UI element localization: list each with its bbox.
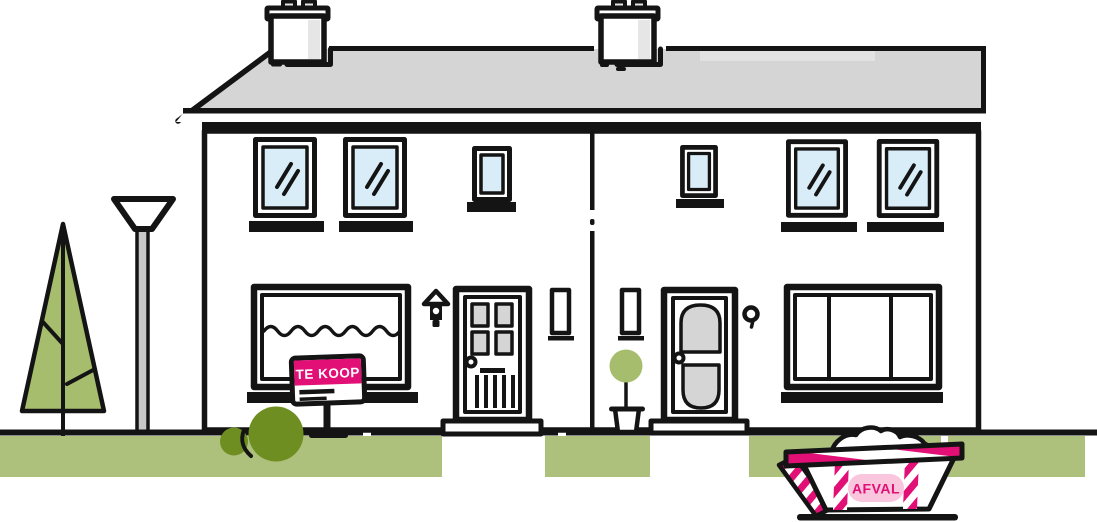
door-knob [467, 358, 476, 367]
window-sill [618, 336, 644, 341]
right-front-door [651, 290, 747, 433]
sign-label: TE KOOP [295, 365, 360, 382]
door-panel [683, 365, 719, 408]
window-sill [781, 392, 943, 403]
right-house-small-window [682, 147, 715, 195]
street-lamp [114, 199, 173, 433]
window-sill [339, 221, 413, 232]
window-sill [548, 336, 574, 341]
skip-ground-shadow [797, 514, 958, 521]
left-front-door [443, 289, 541, 434]
sign-post [324, 403, 331, 434]
letterbox [480, 368, 505, 373]
lamp-pole [137, 228, 148, 433]
chimney-right [597, 2, 661, 72]
left-house-upstairs-window-1 [256, 140, 315, 216]
window-sill [867, 222, 944, 232]
plant-pot [615, 409, 639, 432]
ground-line [0, 430, 1097, 436]
window-sill [249, 221, 324, 232]
door-knob [675, 354, 684, 363]
door-pane [496, 332, 512, 354]
lamp-head [114, 199, 173, 229]
door-pane [472, 332, 488, 354]
left-house-upstairs-window-2 [346, 140, 405, 216]
door-pane [472, 304, 488, 326]
street-scene-illustration: TE KOOP AFVAL [0, 0, 1097, 522]
skip-hazard-band [903, 459, 919, 509]
door-pane [496, 304, 512, 326]
chimney-left [267, 2, 331, 67]
window-sill [781, 222, 857, 232]
right-house-living-window [781, 287, 943, 403]
skip-hazard-band [833, 461, 849, 510]
door-panel [681, 305, 720, 352]
window-mullion [889, 295, 893, 379]
scene-canvas: TE KOOP AFVAL [0, 0, 1097, 522]
window-mullion [827, 295, 831, 379]
window-sill [467, 202, 516, 212]
roof-highlight [700, 51, 875, 61]
plant-ball [610, 350, 643, 383]
right-house-upstairs-window-2 [879, 141, 937, 215]
roof-bottom-edge [183, 108, 986, 114]
right-house-upstairs-window-1 [788, 142, 845, 216]
party-wall-line [590, 133, 595, 431]
conifer-tree [22, 224, 104, 436]
skip-label: AFVAL [852, 481, 900, 497]
left-house-small-window [475, 149, 510, 200]
right-house-hall-window [618, 290, 644, 341]
sign-foot [309, 433, 348, 439]
left-house-hall-window [548, 290, 574, 341]
window-sill [676, 199, 724, 208]
roof-fascia [176, 114, 986, 123]
